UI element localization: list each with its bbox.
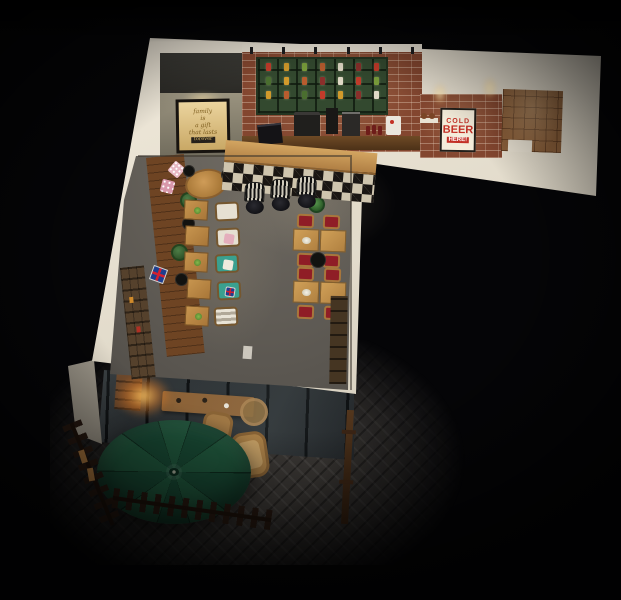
cafe-table	[184, 305, 209, 326]
jar	[284, 63, 289, 71]
plant-pot	[195, 313, 202, 320]
restroom-partition	[508, 140, 532, 153]
pendant-lamp-black	[175, 273, 188, 286]
wall-light-glow	[482, 76, 498, 100]
rail-crossbar	[342, 430, 356, 435]
flower-vase	[302, 237, 311, 244]
chair-red-cushion	[323, 215, 340, 230]
cash-register	[257, 123, 283, 145]
armchair-teal	[215, 253, 240, 273]
stool-seat	[271, 197, 290, 212]
jar	[302, 63, 307, 71]
jug-ledge	[420, 118, 438, 123]
hook-icon	[314, 47, 317, 54]
armchair-pillow-white	[222, 259, 233, 270]
jar	[374, 63, 379, 71]
rail-crossbar	[339, 480, 353, 485]
jar	[338, 63, 343, 71]
coffee-grinder	[326, 108, 338, 134]
hook-icon	[379, 47, 382, 54]
bottle	[378, 126, 382, 135]
stand-mixer	[386, 116, 401, 135]
bottle	[372, 125, 376, 134]
armchair-pillow-union-jack	[224, 286, 235, 297]
stool-seat	[245, 200, 264, 215]
jar-rows	[258, 59, 386, 113]
dining-table-wood	[293, 229, 320, 252]
bar-stool	[269, 178, 293, 221]
bottle	[136, 326, 141, 332]
bar-stool	[295, 175, 319, 218]
plant-pot	[194, 207, 201, 214]
bar-stool	[243, 181, 267, 224]
hook-icon	[411, 47, 414, 54]
jar	[320, 77, 325, 85]
wall-edge-shadow	[350, 157, 352, 390]
jar	[320, 63, 325, 71]
stool-seat	[297, 194, 316, 209]
jar	[356, 63, 361, 71]
armchair-teal	[217, 280, 242, 300]
bottle	[129, 297, 134, 303]
umbrella-pole-hub	[169, 468, 179, 476]
poster-line: forever	[191, 137, 215, 143]
jar	[356, 77, 361, 85]
armchair-white	[216, 227, 241, 247]
jar	[284, 91, 289, 99]
bottle	[366, 126, 370, 135]
jar	[374, 91, 379, 99]
jar	[338, 77, 343, 85]
cafe-render-scene: family is a gift that lasts forever COLD…	[0, 0, 621, 600]
cafe-table	[186, 278, 211, 299]
jar	[284, 77, 289, 85]
green-jar-shelf	[256, 57, 388, 115]
jar	[374, 77, 379, 85]
wall-edge-shadow	[138, 155, 352, 157]
cold-beer-sign: COLD BEER HERE!	[440, 108, 477, 153]
mixer-knob	[390, 120, 394, 124]
beer-sign-word: BEER	[443, 124, 474, 136]
jar	[320, 91, 325, 99]
family-poster: family is a gift that lasts forever	[176, 99, 231, 154]
tall-wine-shelf	[329, 296, 348, 384]
pendant-lamp-black	[183, 165, 195, 177]
wall-light-glow	[432, 82, 448, 106]
jar	[302, 77, 307, 85]
clay-jug	[421, 113, 427, 119]
hook-icon	[250, 47, 253, 54]
floor-tile-marker	[243, 346, 253, 360]
shelf-ledge	[242, 44, 422, 52]
coffee-machine	[342, 112, 360, 136]
jar	[356, 91, 361, 99]
jar	[266, 77, 271, 85]
jar	[266, 91, 271, 99]
pendant-lamp-black	[310, 252, 326, 268]
dining-table-wood	[293, 281, 320, 304]
cafe-table	[183, 251, 208, 272]
jar	[302, 91, 307, 99]
family-poster-paper: family is a gift that lasts forever	[179, 102, 228, 151]
cafe-table	[183, 199, 208, 220]
armchair-white	[215, 201, 240, 221]
hook-icon	[282, 47, 285, 54]
jar	[266, 63, 271, 71]
armchair-pillow-pink	[223, 233, 234, 244]
jar	[338, 91, 343, 99]
beer-sign-word: HERE!	[446, 136, 469, 142]
chair-red-cushion	[297, 267, 314, 282]
cafe-table	[184, 225, 209, 246]
dining-table-wood	[320, 230, 347, 253]
hook-icon	[347, 47, 350, 54]
chair-red-cushion	[297, 305, 314, 320]
chair-red-cushion	[324, 268, 341, 283]
armchair-striped	[214, 306, 239, 326]
flower-vase	[302, 289, 311, 296]
clay-jug	[429, 113, 435, 119]
plant-pot	[194, 259, 201, 266]
